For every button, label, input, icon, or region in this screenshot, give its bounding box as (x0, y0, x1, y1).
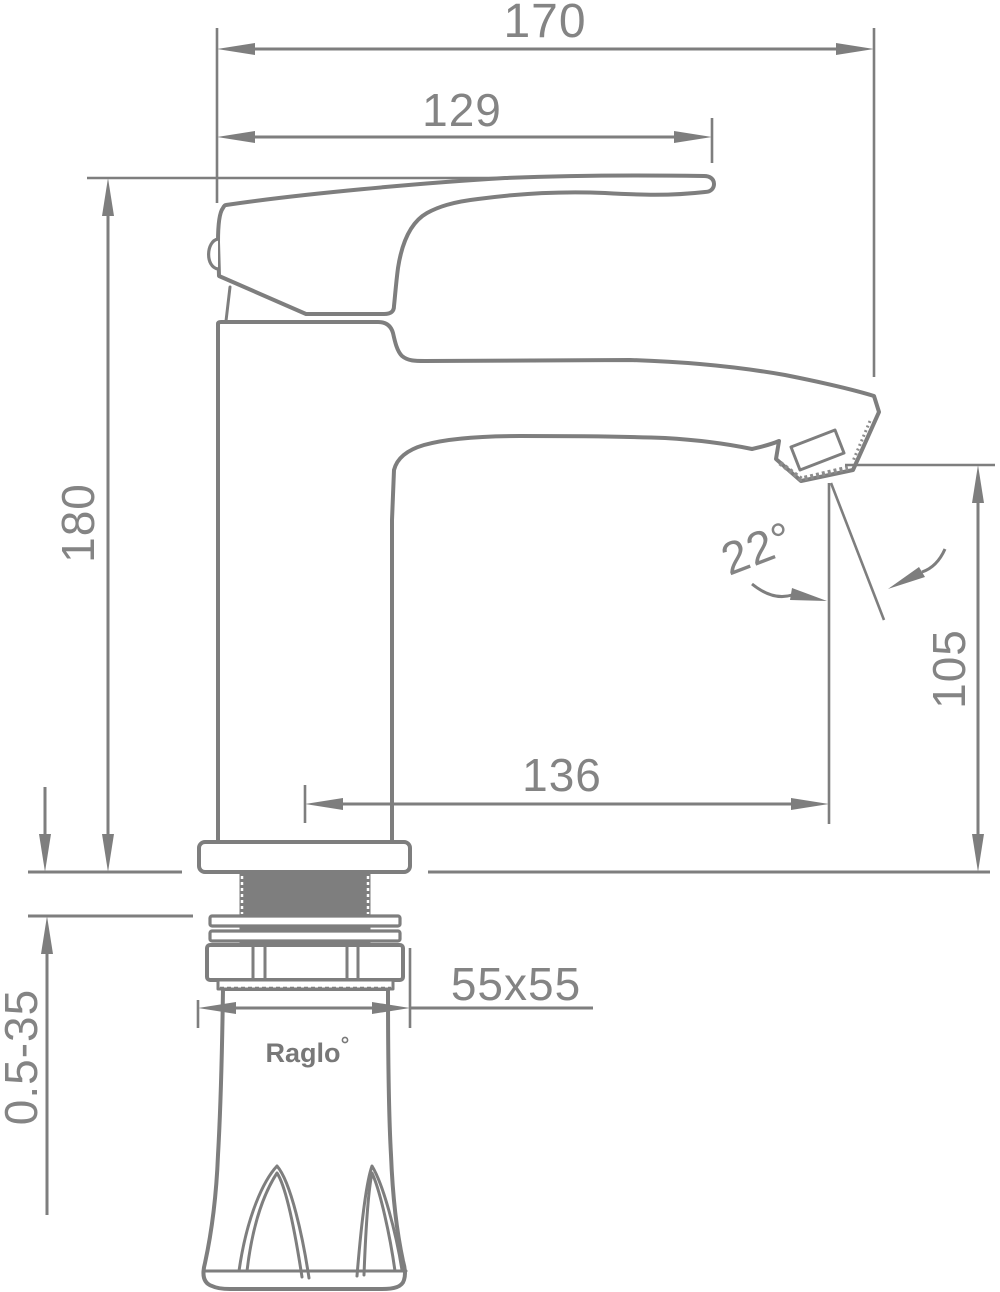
dim-label-spout-angle: 22° (714, 511, 800, 586)
arrowhead-arc-right (888, 567, 925, 589)
base-flange (199, 842, 410, 872)
dim-spout-angle: 22° (714, 483, 945, 824)
dim-label-overall-height: 180 (52, 483, 104, 563)
mounting-surface-lines (28, 872, 990, 916)
arrowhead-down (39, 834, 51, 872)
dim-label-overall-length: 170 (503, 0, 586, 48)
angle-arc-right (922, 549, 945, 572)
brand-mark: Raglo (265, 1037, 347, 1068)
dim-label-base-plate: 55x55 (451, 958, 581, 1010)
lever-handle (218, 175, 714, 314)
arrowhead-arc-left (790, 588, 827, 601)
faucet-dimension-drawing: 170 129 180 136 (0, 0, 1000, 1292)
arrowhead-left (198, 1002, 236, 1014)
dim-handle-length: 129 (217, 84, 712, 163)
handle-indicator-button (209, 239, 218, 269)
arrowhead-top (102, 178, 114, 216)
arrowhead-right (674, 131, 712, 143)
arrowhead-right (791, 798, 829, 810)
lock-nut (207, 945, 403, 980)
cartridge-dome-edge (226, 287, 230, 321)
arrowhead-up (41, 916, 53, 954)
arrowhead-bottom (972, 834, 984, 872)
dim-label-spout-reach: 136 (522, 749, 602, 801)
arrowhead-left (217, 43, 255, 55)
faucet-artwork (199, 175, 879, 1289)
arrowhead-right (836, 43, 874, 55)
angle-direction-line (831, 483, 884, 620)
dim-label-handle-length: 129 (422, 84, 502, 136)
dim-outlet-height: 105 (845, 465, 995, 872)
arrowhead-left (217, 131, 255, 143)
washer-upper (210, 916, 400, 926)
arrowhead-top (972, 465, 984, 503)
dim-mount-thickness: 0.5-35 (0, 787, 53, 1215)
dim-label-outlet-height: 105 (923, 629, 975, 709)
angle-arc-left (752, 584, 792, 597)
technical-drawing-canvas: 170 129 180 136 (0, 0, 1000, 1292)
washer-lower (210, 931, 400, 941)
dim-label-mount-thickness: 0.5-35 (0, 989, 47, 1125)
arrowhead-right (372, 1002, 410, 1014)
arrowhead-bottom (102, 834, 114, 872)
brand-label: Raglo (265, 1038, 340, 1068)
